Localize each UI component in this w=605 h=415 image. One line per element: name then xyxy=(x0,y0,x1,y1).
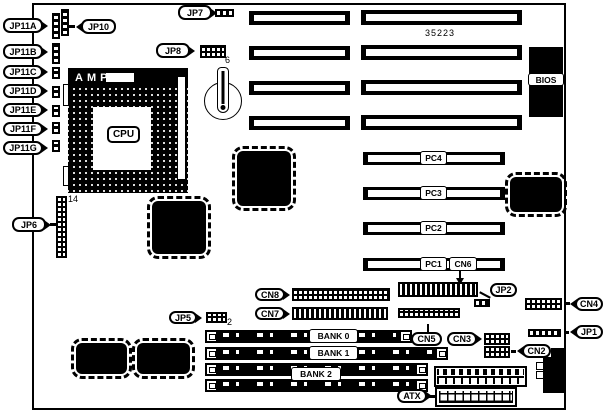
jp5-callout: JP5 xyxy=(169,311,197,324)
qfp-chip-west xyxy=(152,201,206,254)
cn3-callout: CN3 xyxy=(447,332,477,346)
simm-2-left-latch xyxy=(205,347,218,360)
pc2-label: PC2 xyxy=(420,221,447,235)
cn5-lead xyxy=(427,324,429,332)
jp2-jumper xyxy=(474,299,490,307)
jp10-lead xyxy=(69,25,75,28)
jp5-jumper-block xyxy=(206,312,227,323)
jp7-callout: JP7 xyxy=(178,5,212,20)
jp11e-callout: JP11E xyxy=(3,103,43,117)
cn6-connector xyxy=(398,282,478,297)
isa-slot-3-long xyxy=(361,80,522,95)
cn8-connector xyxy=(292,288,390,301)
jp11f-jumper xyxy=(52,122,60,134)
jp11a-callout: JP11A xyxy=(3,18,43,33)
jp6-pin-marker: 14 xyxy=(68,194,78,204)
cn2-connector xyxy=(484,346,510,358)
pc4-label: PC4 xyxy=(420,151,447,165)
keyboard-connector xyxy=(543,357,565,393)
simm-2-right-latch xyxy=(435,347,448,360)
motherboard-diagram: 35223 BIOS AMP CPU JP11A JP10 JP11B JP11… xyxy=(0,0,605,415)
cn4-callout: CN4 xyxy=(575,297,603,311)
bank1-label: BANK 1 xyxy=(309,346,358,360)
jp6-header xyxy=(56,196,67,258)
jp11d-callout: JP11D xyxy=(3,84,43,98)
qfp-chip-north xyxy=(237,151,291,206)
cpu-socket-topbar: AMP xyxy=(68,68,188,88)
isa-slot-4-short xyxy=(249,116,350,130)
jp10-callout: JP10 xyxy=(81,19,116,34)
jp11c-jumper xyxy=(52,67,60,79)
socket-left-tab-2 xyxy=(63,166,69,186)
jp11b-callout: JP11B xyxy=(3,44,43,59)
atx-callout: ATX xyxy=(397,389,427,403)
at-power-pins-bottom xyxy=(437,376,524,384)
pc1-label: PC1 xyxy=(420,257,447,271)
bank2-label: BANK 2 xyxy=(291,367,341,381)
jp11e-jumper xyxy=(52,105,60,117)
part-number: 35223 xyxy=(425,28,455,38)
isa-slot-4-long xyxy=(361,115,522,130)
jp10-jumper-col1 xyxy=(52,13,60,39)
socket-top-window xyxy=(106,73,134,82)
keyboard-pin-2 xyxy=(536,371,544,379)
cn7-connector xyxy=(292,307,388,320)
cn6-label: CN6 xyxy=(449,257,477,271)
simm-1-left-latch xyxy=(205,330,218,343)
jp2-callout: JP2 xyxy=(490,283,517,297)
jp11g-jumper xyxy=(52,140,60,152)
simm-4-left-latch xyxy=(205,379,218,392)
isa-slot-1-long xyxy=(361,10,522,25)
cn5-callout: CN5 xyxy=(411,332,442,346)
isa-slot-2-short xyxy=(249,46,350,60)
jp11c-callout: JP11C xyxy=(3,65,43,79)
jp5-pin-marker: 2 xyxy=(227,317,232,327)
jp11g-callout: JP11G xyxy=(3,141,43,155)
at-power-pins-top xyxy=(437,369,524,375)
jp8-pin-marker: 6 xyxy=(225,55,230,65)
simm-3-left-latch xyxy=(205,363,218,376)
cn8-callout: CN8 xyxy=(255,288,285,301)
qfp-chip-east xyxy=(510,177,562,212)
jp11d-jumper xyxy=(52,86,60,98)
cn4-connector xyxy=(525,298,562,310)
bios-label: BIOS xyxy=(528,73,564,86)
keylock-key xyxy=(217,67,229,113)
atx-power-connector xyxy=(435,387,517,407)
cn2-callout: CN2 xyxy=(522,344,551,358)
qfp-chip-south-1 xyxy=(76,343,127,374)
cn3-connector xyxy=(484,333,510,345)
jp6-callout: JP6 xyxy=(12,217,46,232)
simm-3-right-latch xyxy=(415,363,428,376)
socket-left-tab-1 xyxy=(63,84,69,106)
jp8-jumper-block xyxy=(200,45,226,58)
simm-1-right-latch xyxy=(399,330,412,343)
keyboard-pin-1 xyxy=(536,362,544,370)
cn2-lead xyxy=(511,350,516,353)
jp1-callout: JP1 xyxy=(575,325,603,339)
atx-pin-grid xyxy=(439,391,513,403)
jp7-jumper xyxy=(215,9,234,17)
jp1-lead xyxy=(564,331,569,334)
jp11b-jumper xyxy=(52,43,60,64)
jp11f-callout: JP11F xyxy=(3,122,43,136)
isa-slot-3-short xyxy=(249,81,350,95)
cn7-callout: CN7 xyxy=(255,307,285,320)
pc3-label: PC3 xyxy=(420,186,447,200)
at-power-connector xyxy=(434,366,527,387)
jp8-callout: JP8 xyxy=(156,43,190,58)
jp10-jumper-col2 xyxy=(61,9,69,36)
qfp-chip-south-2 xyxy=(137,343,190,374)
bank0-label: BANK 0 xyxy=(309,329,358,343)
cn5-header xyxy=(398,308,460,318)
isa-slot-1-short xyxy=(249,11,350,25)
jp1-connector xyxy=(528,329,561,337)
isa-slot-2-long xyxy=(361,45,522,60)
zif-lever xyxy=(177,76,186,180)
cpu-label: CPU xyxy=(107,126,140,143)
